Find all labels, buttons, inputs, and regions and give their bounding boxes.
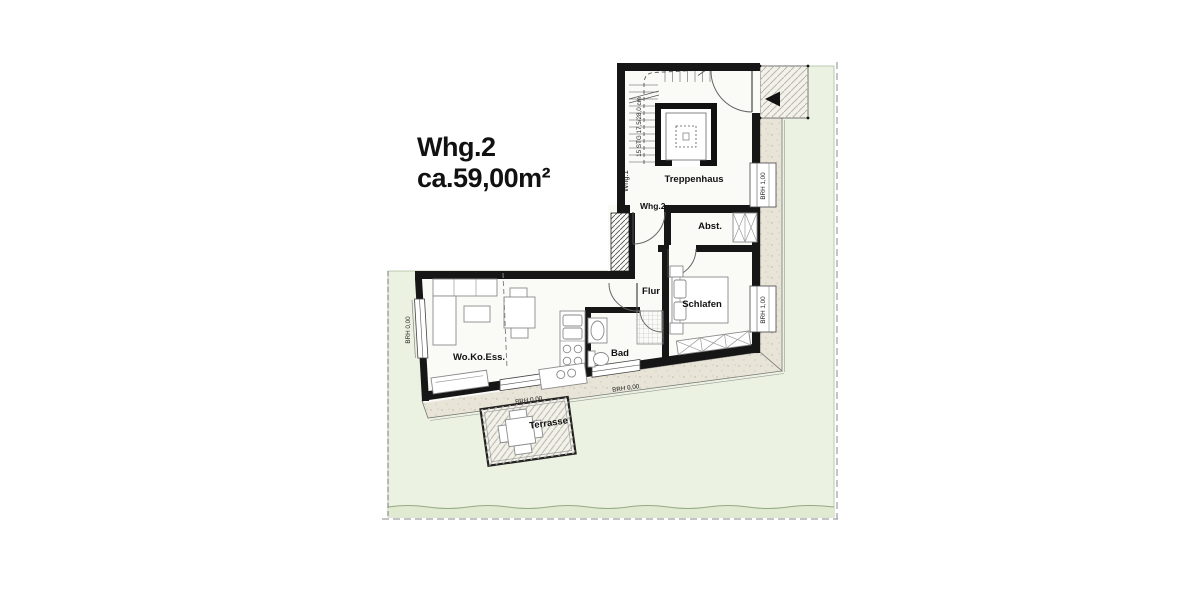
hob-burner: [563, 357, 571, 365]
hob-burner: [563, 345, 571, 353]
label-flur: Flur: [642, 286, 660, 297]
wall-flur-west: [629, 213, 635, 271]
wall-flur-north-b: [664, 205, 760, 213]
label-wokoess: Wo.Ko.Ess.: [453, 352, 505, 363]
coffee-table: [464, 306, 490, 322]
wall-flur-north-a: [617, 205, 630, 213]
label-whg1: Whg.1: [621, 170, 630, 192]
kitchen-unit: [560, 311, 585, 371]
page-title-line1: Whg.2: [417, 132, 496, 162]
label-brh-west: BRH 0,00: [405, 316, 412, 344]
hob-burner: [574, 345, 582, 353]
elevator: [655, 103, 717, 167]
elevator-car: [666, 113, 706, 160]
hatched-wall-strip: [611, 213, 629, 271]
page-title-line2: ca.59,00m²: [417, 163, 551, 193]
label-schlafen: Schlafen: [682, 299, 722, 310]
wall-north: [617, 63, 760, 71]
nightstand-1: [670, 266, 683, 277]
wall-westwing-north: [415, 271, 635, 279]
floor-plan-canvas: Whg.2 ca.59,00m² Treppenhaus Abst. Flur …: [0, 0, 1200, 600]
wall-west-top: [415, 279, 423, 299]
label-brh-east-treppenhaus: BRH 1,00: [760, 172, 767, 200]
floor-plan: Whg.2 ca.59,00m² Treppenhaus Abst. Flur …: [0, 0, 1200, 600]
storage-closet: [733, 213, 757, 242]
toilet: [588, 351, 609, 367]
wall-east-1: [752, 113, 760, 165]
nightstand-2: [670, 323, 683, 334]
washbasin: [588, 318, 607, 343]
wall-abst-south-b: [696, 245, 760, 252]
wall-bad-north: [585, 307, 640, 313]
label-stairs-note: 15 STG 17,5/28,0 cm: [636, 97, 643, 157]
label-bad: Bad: [611, 348, 629, 359]
label-brh-east-schlafen: BRH 1,00: [760, 296, 767, 324]
entry-platform: [759, 65, 810, 120]
terrace: [481, 397, 576, 466]
wall-abst-west: [664, 213, 671, 245]
label-abst: Abst.: [698, 221, 722, 232]
label-treppenhaus: Treppenhaus: [664, 174, 723, 185]
label-whg2-entry: Whg.2: [640, 201, 666, 211]
shower: [637, 311, 663, 344]
